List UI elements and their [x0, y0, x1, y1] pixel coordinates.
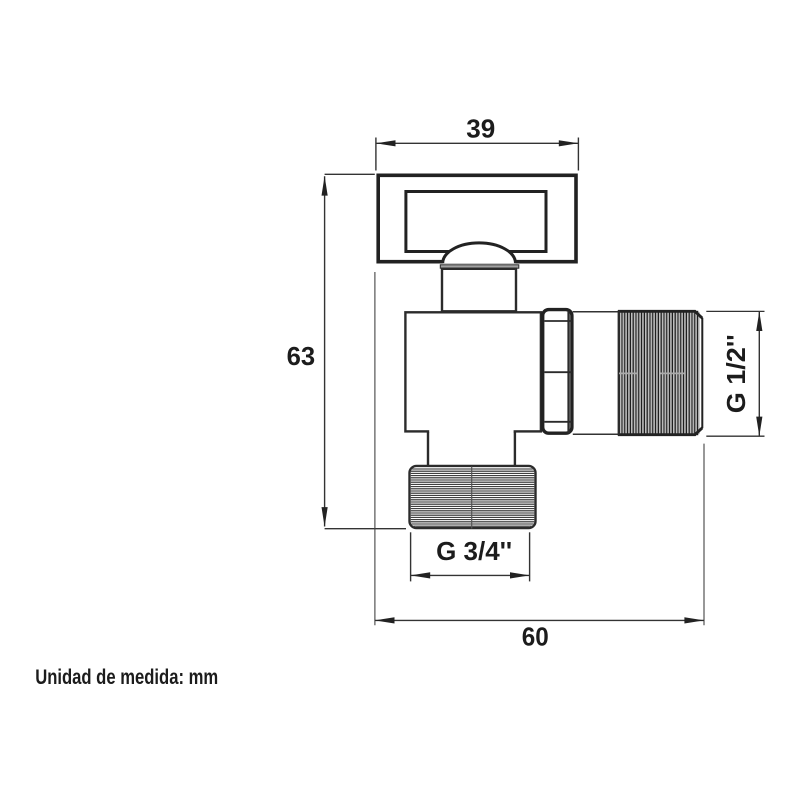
svg-text:Unidad de medida: mm: Unidad de medida: mm [35, 666, 218, 689]
svg-text:G 1/2'': G 1/2'' [721, 334, 751, 413]
svg-text:39: 39 [466, 114, 495, 144]
svg-text:60: 60 [522, 622, 549, 652]
svg-text:G 3/4'': G 3/4'' [436, 536, 512, 566]
svg-text:63: 63 [287, 341, 316, 371]
